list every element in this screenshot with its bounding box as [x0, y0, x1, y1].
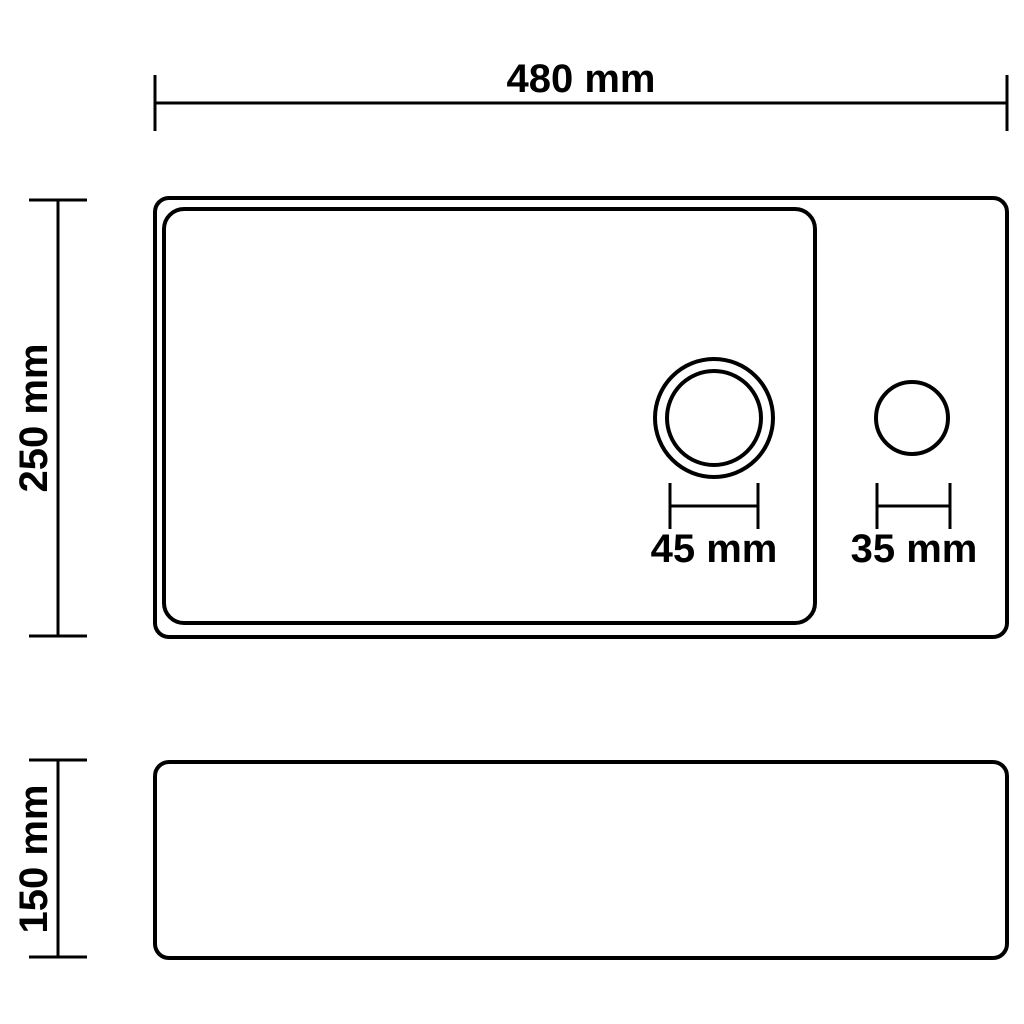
drain-inner-circle	[667, 371, 761, 465]
width-dimension-label: 480 mm	[507, 57, 656, 101]
height-dimension-label: 150 mm	[12, 785, 56, 934]
top-view-outline	[155, 198, 1007, 637]
depth-dimension-label: 250 mm	[12, 344, 56, 493]
side-view	[155, 762, 1007, 958]
basin-dimension-diagram: 480 mm 250 mm 45 mm 35 mm 15	[0, 0, 1024, 1024]
side-view-outline	[155, 762, 1007, 958]
drain-dimension-label: 45 mm	[651, 527, 778, 571]
height-dimension: 150 mm	[12, 760, 87, 957]
width-dimension: 480 mm	[155, 57, 1007, 131]
faucet-hole-dimension-label: 35 mm	[851, 527, 978, 571]
faucet-hole-dimension: 35 mm	[851, 483, 978, 571]
faucet-hole-circle	[876, 382, 948, 454]
depth-dimension: 250 mm	[12, 200, 87, 636]
top-view	[155, 198, 1007, 637]
drain-outer-circle	[655, 359, 773, 477]
drain-dimension: 45 mm	[651, 483, 778, 571]
dimension-drawing: 480 mm 250 mm 45 mm 35 mm 15	[0, 0, 1024, 1024]
